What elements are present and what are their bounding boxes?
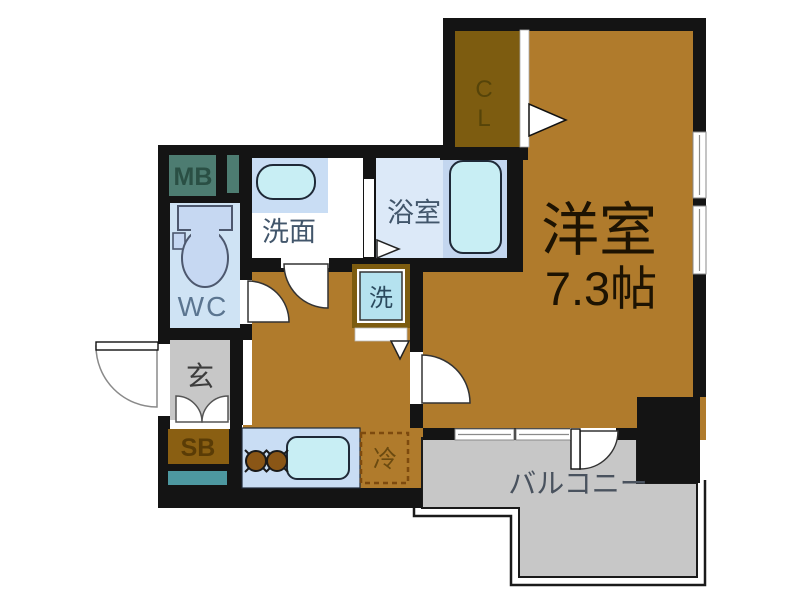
entrance-door-gap: [158, 344, 170, 416]
western-room-label: 洋室: [541, 198, 657, 263]
wall-wc-right-lower: [240, 322, 252, 340]
western-room-size-label: 7.3帖: [545, 262, 657, 315]
wall-entrance-right: [230, 340, 243, 425]
shoe-box-label: SB: [181, 434, 216, 462]
wall-kitchen-bottom: [242, 488, 422, 508]
washbasin-icon: [257, 165, 315, 199]
bathtub-icon: [450, 161, 501, 253]
kitchen-sink-icon: [287, 437, 349, 479]
floor-plan-drawing: 洋室 7.3帖 C L 浴室 洗面 WC 玄 MB SB 洗 冷 バルコニー: [0, 0, 800, 600]
washroom-label: 洗面: [262, 217, 316, 247]
shoe-box-duct: [168, 471, 227, 485]
closet-label-c: C: [475, 76, 492, 103]
wall-wc-right-upper: [240, 145, 252, 282]
wall-wc-bottom: [158, 328, 252, 340]
balcony-door-leaf: [571, 429, 580, 469]
washing-machine-label: 洗: [369, 285, 393, 312]
closet-label-l: L: [477, 105, 490, 132]
bathroom-door-leaf: [364, 179, 374, 257]
entrance-step-strip: [243, 340, 252, 425]
western-room-door-gap: [410, 352, 423, 404]
entrance-door-swing-icon: [96, 346, 157, 407]
wall-bath-right: [507, 147, 523, 272]
balcony-label: バルコニー: [508, 468, 647, 499]
bathroom-label: 浴室: [387, 198, 441, 228]
wall-closet-left: [443, 18, 455, 160]
entrance-door-leaf: [96, 342, 158, 350]
meter-box-label: MB: [174, 163, 213, 191]
refrigerator-label: 冷: [373, 446, 397, 473]
entrance-label: 玄: [186, 361, 214, 392]
meter-box-duct: [227, 155, 239, 193]
wall-top: [443, 18, 706, 31]
closet-sliding-door: [520, 30, 529, 147]
wc-label: WC: [178, 291, 229, 322]
floor-plan: 洋室 7.3帖 C L 浴室 洗面 WC 玄 MB SB 洗 冷 バルコニー: [0, 0, 800, 600]
